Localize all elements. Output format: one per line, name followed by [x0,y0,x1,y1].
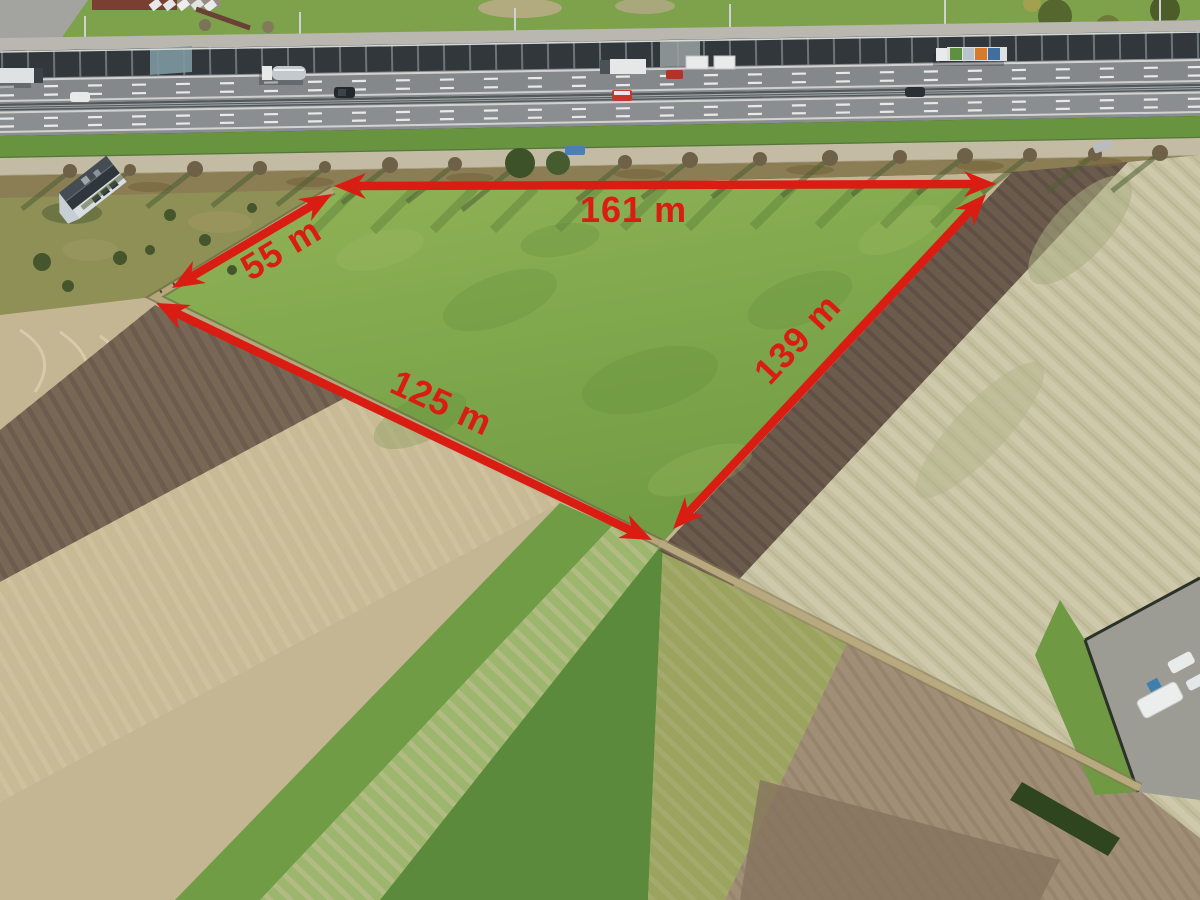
van-red-white [612,90,632,101]
car-white [70,92,90,102]
car-dark-suv [334,87,355,98]
aerial-photo-canvas [0,0,1200,900]
car-red [666,70,683,79]
blue-car-parked [565,146,585,155]
car-dark [905,87,925,97]
truck-dark-cab [600,59,646,74]
dimension-label-top: 161 m [580,189,687,231]
aerial-photo: 161 m 55 m 125 m 139 m [0,0,1200,900]
truck-colorful-trailer [933,47,1007,66]
motorway-zone [0,0,1200,198]
barrier-glass-panel [150,46,192,75]
tanker-truck [259,66,306,85]
